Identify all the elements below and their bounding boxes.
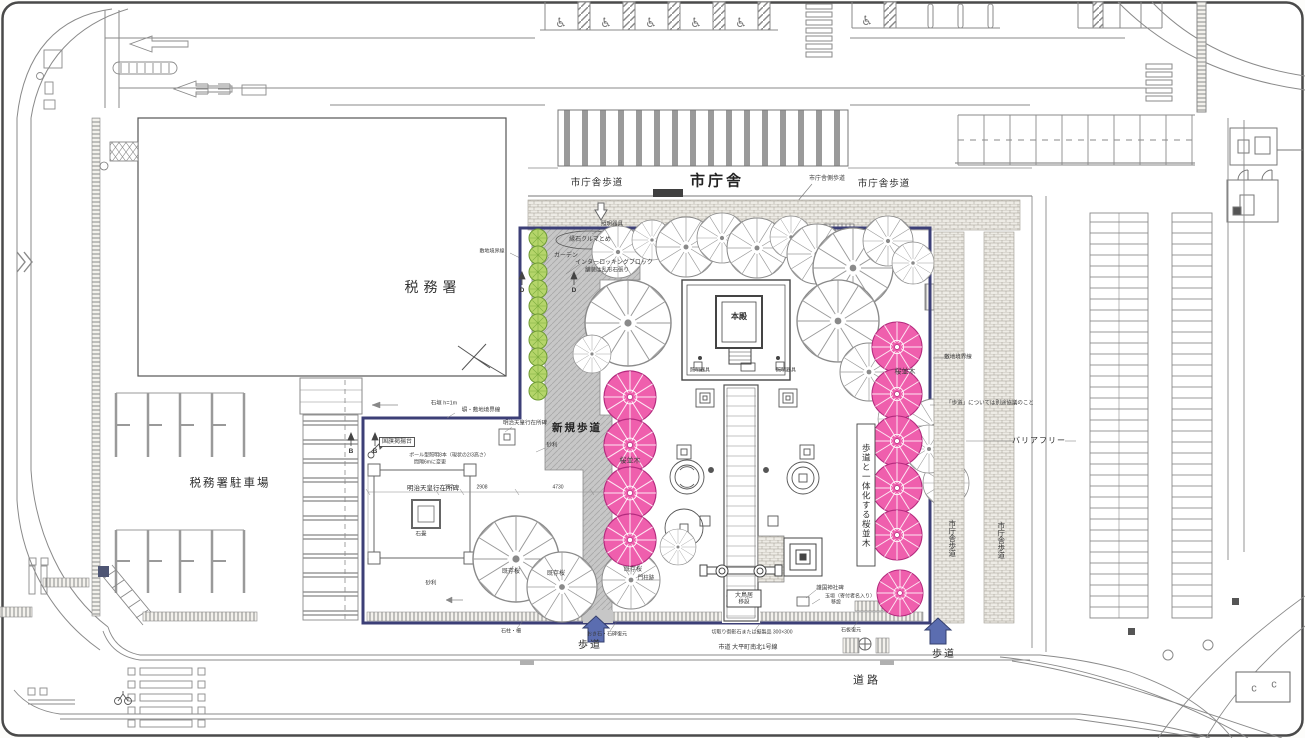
cherry-note-box bbox=[857, 424, 875, 566]
cherry-tree bbox=[877, 570, 923, 616]
tamagaki-fence bbox=[367, 612, 923, 621]
garden-plant bbox=[529, 229, 547, 247]
tax-office-walkway bbox=[300, 378, 362, 620]
garden-plant bbox=[529, 246, 547, 264]
cherry-tree bbox=[604, 514, 656, 566]
cherry-tree bbox=[872, 416, 922, 466]
existing-tree bbox=[573, 335, 611, 373]
cherry-tree bbox=[872, 510, 922, 560]
garden-plant bbox=[529, 331, 547, 349]
cherry-tree bbox=[604, 371, 656, 423]
wheelchair-icon: ♿ bbox=[600, 15, 612, 30]
wheelchair-icon: ♿ bbox=[735, 15, 747, 30]
site-plan-page: ♿♿♿♿♿♿ 税務署 市庁舎 市庁舎歩道 bbox=[0, 0, 1305, 738]
garden-plant bbox=[529, 263, 547, 281]
existing-tree bbox=[892, 242, 934, 284]
wheelchair-icon: ♿ bbox=[555, 15, 567, 30]
existing-tree bbox=[660, 529, 696, 565]
memorial-tower bbox=[784, 538, 822, 576]
wheelchair-icon: ♿ bbox=[861, 13, 873, 28]
cherry-tree bbox=[604, 419, 656, 471]
garden-plant bbox=[529, 314, 547, 332]
existing-tree bbox=[527, 552, 597, 622]
cherry-tree bbox=[604, 467, 656, 519]
wheelchair-icon: ♿ bbox=[645, 15, 657, 30]
cherry-tree bbox=[872, 322, 922, 372]
entrance-grid bbox=[110, 142, 138, 161]
tax-office-building bbox=[100, 118, 520, 376]
west-fence bbox=[92, 118, 100, 616]
cherry-tree bbox=[872, 369, 922, 419]
site-plan-canvas: ♿♿♿♿♿♿ bbox=[0, 0, 1305, 738]
torii-label-box bbox=[727, 590, 761, 607]
cherry-tree bbox=[872, 463, 922, 513]
entrance-mat bbox=[653, 189, 683, 197]
wheelchair-icon: ♿ bbox=[690, 15, 702, 30]
cc-box bbox=[1236, 672, 1290, 702]
approach-path bbox=[724, 385, 758, 621]
garden-plant bbox=[529, 348, 547, 366]
garden-plant bbox=[529, 382, 547, 400]
garden-plant bbox=[529, 297, 547, 315]
garden-plant bbox=[529, 365, 547, 383]
garden-plant bbox=[529, 280, 547, 298]
